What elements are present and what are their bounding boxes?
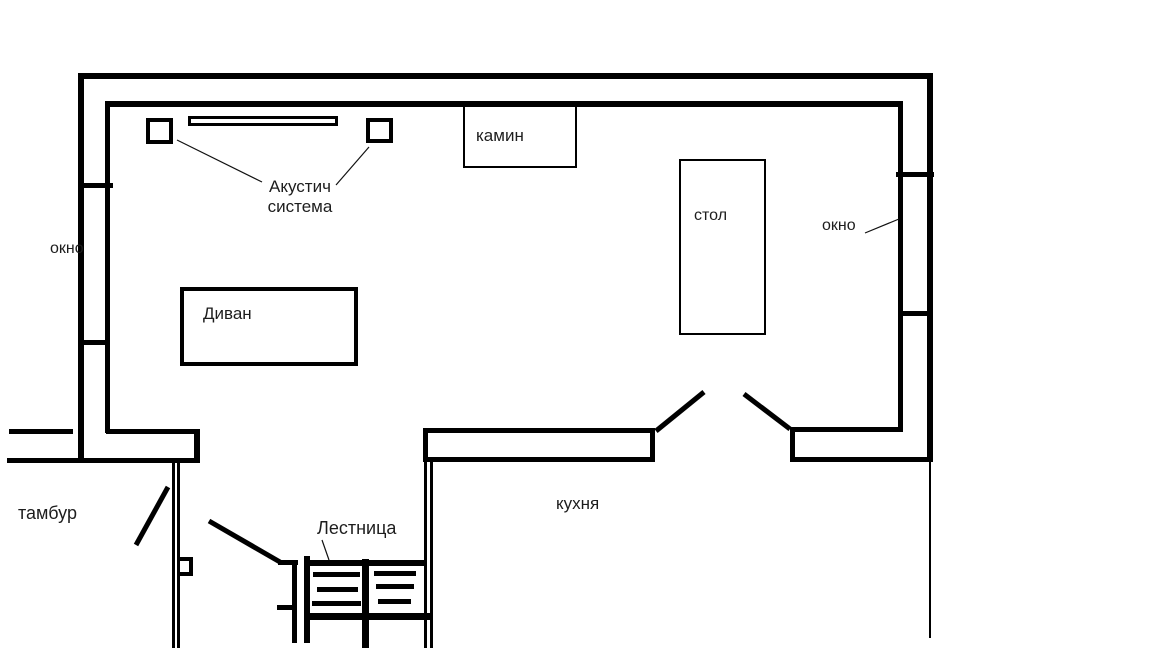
sofa-label: Диван — [203, 304, 252, 324]
kitchen-door-swing-right-line — [744, 394, 790, 429]
kitchen-label: кухня — [556, 494, 599, 514]
kitchen-door-swing-left-line — [656, 392, 704, 431]
acoustic-system-label-line2: система — [268, 197, 333, 216]
staircase-label: Лестница — [317, 518, 396, 539]
window-right-label: окно — [822, 217, 856, 235]
vestibule-door-swing-line — [136, 487, 168, 545]
vestibule-label: тамбур — [18, 503, 77, 524]
plan-lines-overlay — [0, 0, 1152, 648]
acoustic-leader-left-line — [177, 140, 262, 182]
table-label: стол — [694, 207, 727, 225]
acoustic-system-label: Акустич система — [256, 177, 344, 216]
staircase-leader-line — [322, 540, 329, 560]
vestibule-stair-diagonal-wall — [209, 521, 280, 562]
window-left-label: окно — [50, 240, 84, 258]
fireplace-label: камин — [476, 126, 524, 146]
floor-plan: Акустич система камин стол окно окно Див… — [0, 0, 1152, 648]
window-right-leader-line — [865, 219, 899, 233]
acoustic-system-label-line1: Акустич — [269, 177, 331, 196]
